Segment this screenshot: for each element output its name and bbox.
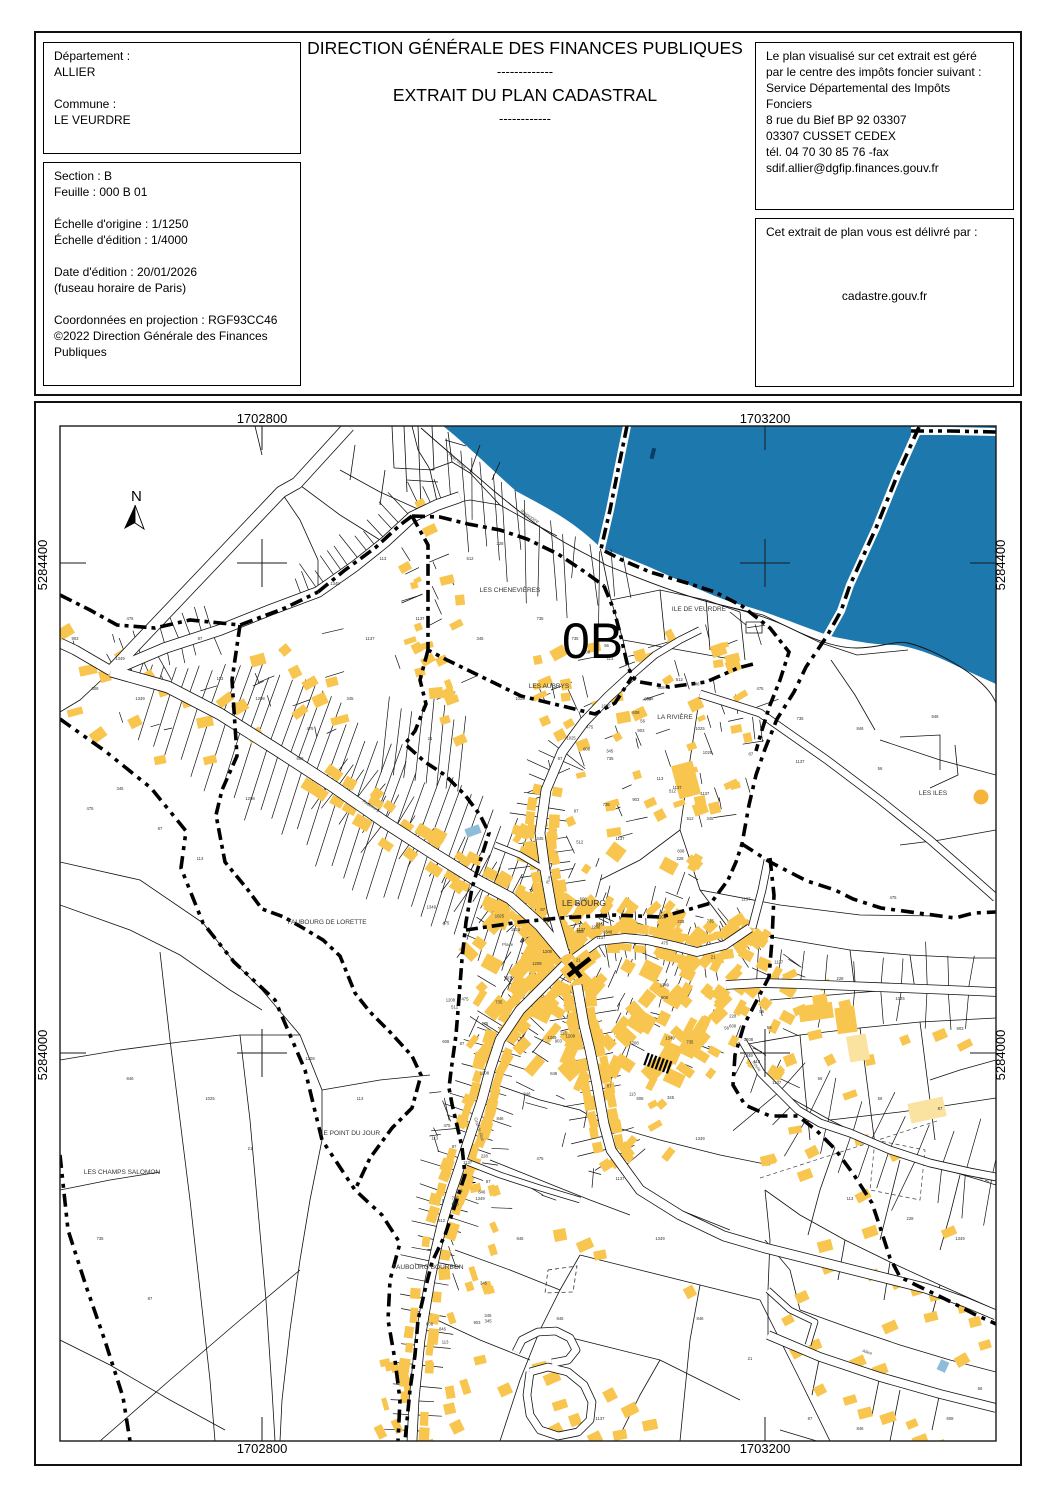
svg-text:113: 113 xyxy=(357,1096,364,1101)
svg-text:1208: 1208 xyxy=(543,949,553,954)
svg-text:608: 608 xyxy=(729,1023,737,1028)
svg-text:345: 345 xyxy=(117,786,125,791)
svg-text:113: 113 xyxy=(442,1340,449,1345)
svg-text:1208: 1208 xyxy=(480,1070,490,1075)
svg-text:1349: 1349 xyxy=(655,1236,665,1241)
svg-text:113: 113 xyxy=(657,776,664,781)
svg-text:735: 735 xyxy=(797,716,805,721)
svg-text:87: 87 xyxy=(607,1083,612,1088)
svg-text:Rue de la: Rue de la xyxy=(447,452,467,470)
svg-text:903: 903 xyxy=(632,797,640,802)
svg-text:1025: 1025 xyxy=(601,703,611,708)
svg-text:1137: 1137 xyxy=(772,1080,782,1085)
svg-text:1025: 1025 xyxy=(566,735,576,740)
svg-text:56: 56 xyxy=(878,766,883,771)
svg-text:LES CHENEVIÈRES: LES CHENEVIÈRES xyxy=(480,585,541,594)
svg-text:1137: 1137 xyxy=(365,636,375,641)
svg-text:228: 228 xyxy=(456,1188,464,1193)
svg-text:1025: 1025 xyxy=(511,927,521,932)
svg-text:1349: 1349 xyxy=(135,696,145,701)
svg-text:735: 735 xyxy=(495,1000,503,1005)
svg-text:1137: 1137 xyxy=(615,1176,625,1181)
svg-text:1137: 1137 xyxy=(463,1160,473,1165)
svg-text:113: 113 xyxy=(560,1030,567,1035)
svg-text:87: 87 xyxy=(452,1144,457,1149)
svg-text:735: 735 xyxy=(537,616,545,621)
svg-text:846: 846 xyxy=(693,682,701,687)
svg-text:N: N xyxy=(131,488,142,505)
svg-text:1208: 1208 xyxy=(446,997,456,1002)
svg-text:1349: 1349 xyxy=(695,1136,705,1141)
svg-text:512: 512 xyxy=(669,789,677,794)
svg-text:903: 903 xyxy=(637,728,645,733)
svg-text:1137: 1137 xyxy=(741,897,751,902)
svg-text:608: 608 xyxy=(637,1096,645,1101)
svg-text:1703200: 1703200 xyxy=(740,411,791,426)
svg-text:1208: 1208 xyxy=(566,1034,576,1039)
svg-text:21: 21 xyxy=(711,954,716,959)
svg-text:608: 608 xyxy=(661,995,669,1000)
svg-text:1025: 1025 xyxy=(543,916,553,921)
svg-text:1349: 1349 xyxy=(743,1053,753,1058)
svg-text:1208: 1208 xyxy=(532,961,542,966)
svg-text:512: 512 xyxy=(687,816,695,821)
svg-text:345: 345 xyxy=(477,636,485,641)
svg-text:228: 228 xyxy=(677,919,685,924)
svg-text:512: 512 xyxy=(451,1005,459,1010)
svg-text:1349: 1349 xyxy=(330,581,340,586)
svg-text:512: 512 xyxy=(467,556,475,561)
svg-text:0B: 0B xyxy=(562,613,623,669)
svg-text:56: 56 xyxy=(767,1025,772,1030)
svg-text:228: 228 xyxy=(907,1216,915,1221)
svg-text:345: 345 xyxy=(606,748,614,753)
svg-text:903: 903 xyxy=(473,1320,481,1325)
svg-text:87: 87 xyxy=(808,1416,813,1421)
svg-text:846: 846 xyxy=(557,1316,565,1321)
svg-text:512: 512 xyxy=(676,677,684,682)
svg-text:5284000: 5284000 xyxy=(993,1030,1008,1081)
svg-text:846: 846 xyxy=(517,1236,525,1241)
svg-text:FAUBOURG BOURBON: FAUBOURG BOURBON xyxy=(392,1264,463,1271)
svg-text:846: 846 xyxy=(697,1316,705,1321)
svg-text:87: 87 xyxy=(460,1041,465,1046)
svg-text:5284400: 5284400 xyxy=(993,540,1008,591)
svg-text:345: 345 xyxy=(537,836,545,841)
svg-text:228: 228 xyxy=(837,976,845,981)
svg-text:1025: 1025 xyxy=(205,1096,215,1101)
svg-text:1025: 1025 xyxy=(515,696,525,701)
svg-text:608: 608 xyxy=(297,756,305,761)
svg-text:735: 735 xyxy=(607,756,615,761)
svg-text:608: 608 xyxy=(442,1039,450,1044)
svg-text:56: 56 xyxy=(818,1076,823,1081)
svg-text:846: 846 xyxy=(478,1190,486,1195)
svg-text:475: 475 xyxy=(661,941,669,946)
svg-text:87: 87 xyxy=(574,809,579,814)
svg-text:345: 345 xyxy=(707,816,715,821)
svg-text:1025: 1025 xyxy=(695,726,705,731)
svg-text:113: 113 xyxy=(847,1196,854,1201)
svg-text:846: 846 xyxy=(932,714,940,719)
svg-text:608: 608 xyxy=(677,849,685,854)
svg-text:113: 113 xyxy=(754,1059,761,1064)
svg-text:5284400: 5284400 xyxy=(36,540,50,591)
svg-text:LES AUBRYS: LES AUBRYS xyxy=(529,683,570,690)
svg-text:21: 21 xyxy=(748,1356,753,1361)
svg-text:87: 87 xyxy=(148,1296,153,1301)
svg-text:475: 475 xyxy=(481,1021,489,1026)
svg-text:512: 512 xyxy=(576,840,584,845)
svg-text:475: 475 xyxy=(757,686,765,691)
svg-text:846: 846 xyxy=(596,921,604,926)
svg-text:608: 608 xyxy=(580,897,588,902)
svg-text:475: 475 xyxy=(537,1156,545,1161)
svg-text:345: 345 xyxy=(485,1319,493,1324)
svg-text:Allee: Allee xyxy=(862,1348,873,1356)
svg-text:1137: 1137 xyxy=(576,927,586,932)
svg-text:5284000: 5284000 xyxy=(36,1030,50,1081)
svg-text:228: 228 xyxy=(481,1153,489,1158)
svg-text:1137: 1137 xyxy=(415,616,425,621)
svg-text:1137: 1137 xyxy=(596,935,606,940)
svg-text:846: 846 xyxy=(857,726,865,731)
svg-text:21: 21 xyxy=(576,958,581,963)
svg-text:56: 56 xyxy=(878,1096,883,1101)
svg-text:228: 228 xyxy=(677,856,685,861)
svg-text:345: 345 xyxy=(480,1280,488,1285)
svg-text:475: 475 xyxy=(87,806,95,811)
svg-text:1025: 1025 xyxy=(703,750,713,755)
svg-text:1137: 1137 xyxy=(615,836,625,841)
svg-text:113: 113 xyxy=(380,556,387,561)
svg-text:LES ILES: LES ILES xyxy=(919,790,948,797)
svg-text:608: 608 xyxy=(92,686,100,691)
svg-text:735: 735 xyxy=(452,1195,460,1200)
svg-text:735: 735 xyxy=(707,919,715,924)
svg-text:ILE DE VEURDRE: ILE DE VEURDRE xyxy=(672,606,727,613)
svg-text:1137: 1137 xyxy=(595,1416,605,1421)
svg-text:56: 56 xyxy=(640,719,645,724)
svg-text:113: 113 xyxy=(217,676,224,681)
svg-text:846: 846 xyxy=(550,1071,558,1076)
svg-text:1208: 1208 xyxy=(657,914,667,919)
svg-text:1025: 1025 xyxy=(495,914,505,919)
svg-text:735: 735 xyxy=(97,1236,105,1241)
svg-text:475: 475 xyxy=(307,726,315,731)
svg-text:345: 345 xyxy=(484,1313,492,1318)
svg-text:1702800: 1702800 xyxy=(237,411,288,426)
svg-text:FAUBOURG DE LORETTE: FAUBOURG DE LORETTE xyxy=(287,919,367,926)
svg-text:1137: 1137 xyxy=(795,759,805,764)
svg-text:475: 475 xyxy=(461,996,469,1001)
svg-text:1349: 1349 xyxy=(475,1196,485,1201)
svg-text:475: 475 xyxy=(443,1123,451,1128)
svg-text:1208: 1208 xyxy=(255,696,265,701)
svg-text:87: 87 xyxy=(558,756,563,761)
svg-text:1349: 1349 xyxy=(427,904,437,909)
svg-text:56: 56 xyxy=(978,1386,983,1391)
svg-text:846: 846 xyxy=(605,930,613,935)
svg-text:345: 345 xyxy=(347,696,355,701)
svg-text:113: 113 xyxy=(197,856,204,861)
svg-text:87: 87 xyxy=(938,1106,943,1111)
svg-text:846: 846 xyxy=(439,1327,447,1332)
svg-text:LA RIVIÈRE: LA RIVIÈRE xyxy=(657,712,693,721)
svg-text:345: 345 xyxy=(667,1095,675,1100)
svg-text:1208: 1208 xyxy=(744,1037,754,1042)
svg-text:1702800: 1702800 xyxy=(237,1441,288,1456)
svg-text:1703200: 1703200 xyxy=(740,1441,791,1456)
svg-text:475: 475 xyxy=(586,724,594,729)
svg-text:846: 846 xyxy=(857,1426,865,1431)
svg-text:1208: 1208 xyxy=(629,1041,639,1046)
svg-text:21: 21 xyxy=(428,736,433,741)
svg-text:608: 608 xyxy=(452,1201,460,1206)
svg-text:21: 21 xyxy=(248,1146,253,1151)
svg-text:512: 512 xyxy=(438,1218,446,1223)
svg-text:903: 903 xyxy=(957,1026,965,1031)
svg-text:1025: 1025 xyxy=(895,996,905,1001)
svg-text:903: 903 xyxy=(504,976,512,981)
svg-text:475: 475 xyxy=(890,895,898,900)
svg-text:87: 87 xyxy=(198,636,203,641)
svg-text:LES CHAMPS SALOMON: LES CHAMPS SALOMON xyxy=(84,1169,161,1176)
svg-text:608: 608 xyxy=(947,1416,955,1421)
svg-text:846: 846 xyxy=(127,1076,135,1081)
svg-text:846: 846 xyxy=(523,1092,531,1097)
svg-text:113: 113 xyxy=(431,1135,438,1140)
svg-text:1208: 1208 xyxy=(245,796,255,801)
svg-text:608: 608 xyxy=(658,685,666,690)
svg-text:1349: 1349 xyxy=(115,656,125,661)
svg-text:87: 87 xyxy=(158,826,163,831)
svg-text:608: 608 xyxy=(632,710,640,715)
svg-text:1349: 1349 xyxy=(955,1236,965,1241)
svg-text:735: 735 xyxy=(603,802,611,807)
svg-text:87: 87 xyxy=(540,907,545,912)
svg-text:87: 87 xyxy=(486,1179,491,1184)
svg-text:LE POINT DU JOUR: LE POINT DU JOUR xyxy=(320,1130,381,1137)
svg-text:475: 475 xyxy=(442,920,450,925)
svg-text:475: 475 xyxy=(127,616,135,621)
svg-text:846: 846 xyxy=(497,1116,505,1121)
svg-text:608: 608 xyxy=(644,697,652,702)
svg-text:1137: 1137 xyxy=(774,960,784,965)
svg-text:903: 903 xyxy=(72,636,80,641)
svg-text:1208: 1208 xyxy=(305,1056,315,1061)
svg-text:228: 228 xyxy=(729,1014,737,1019)
svg-text:1349: 1349 xyxy=(660,983,670,988)
svg-text:87: 87 xyxy=(749,751,754,756)
svg-text:1137: 1137 xyxy=(700,791,710,796)
svg-text:608: 608 xyxy=(426,1322,434,1327)
svg-text:228: 228 xyxy=(497,541,505,546)
svg-text:56: 56 xyxy=(759,1009,764,1014)
svg-text:1349: 1349 xyxy=(665,1035,675,1040)
svg-text:Place: Place xyxy=(502,942,514,947)
svg-text:735: 735 xyxy=(686,1039,694,1044)
svg-text:113: 113 xyxy=(629,1091,636,1096)
svg-text:903: 903 xyxy=(555,1038,563,1043)
svg-text:608: 608 xyxy=(583,747,591,752)
